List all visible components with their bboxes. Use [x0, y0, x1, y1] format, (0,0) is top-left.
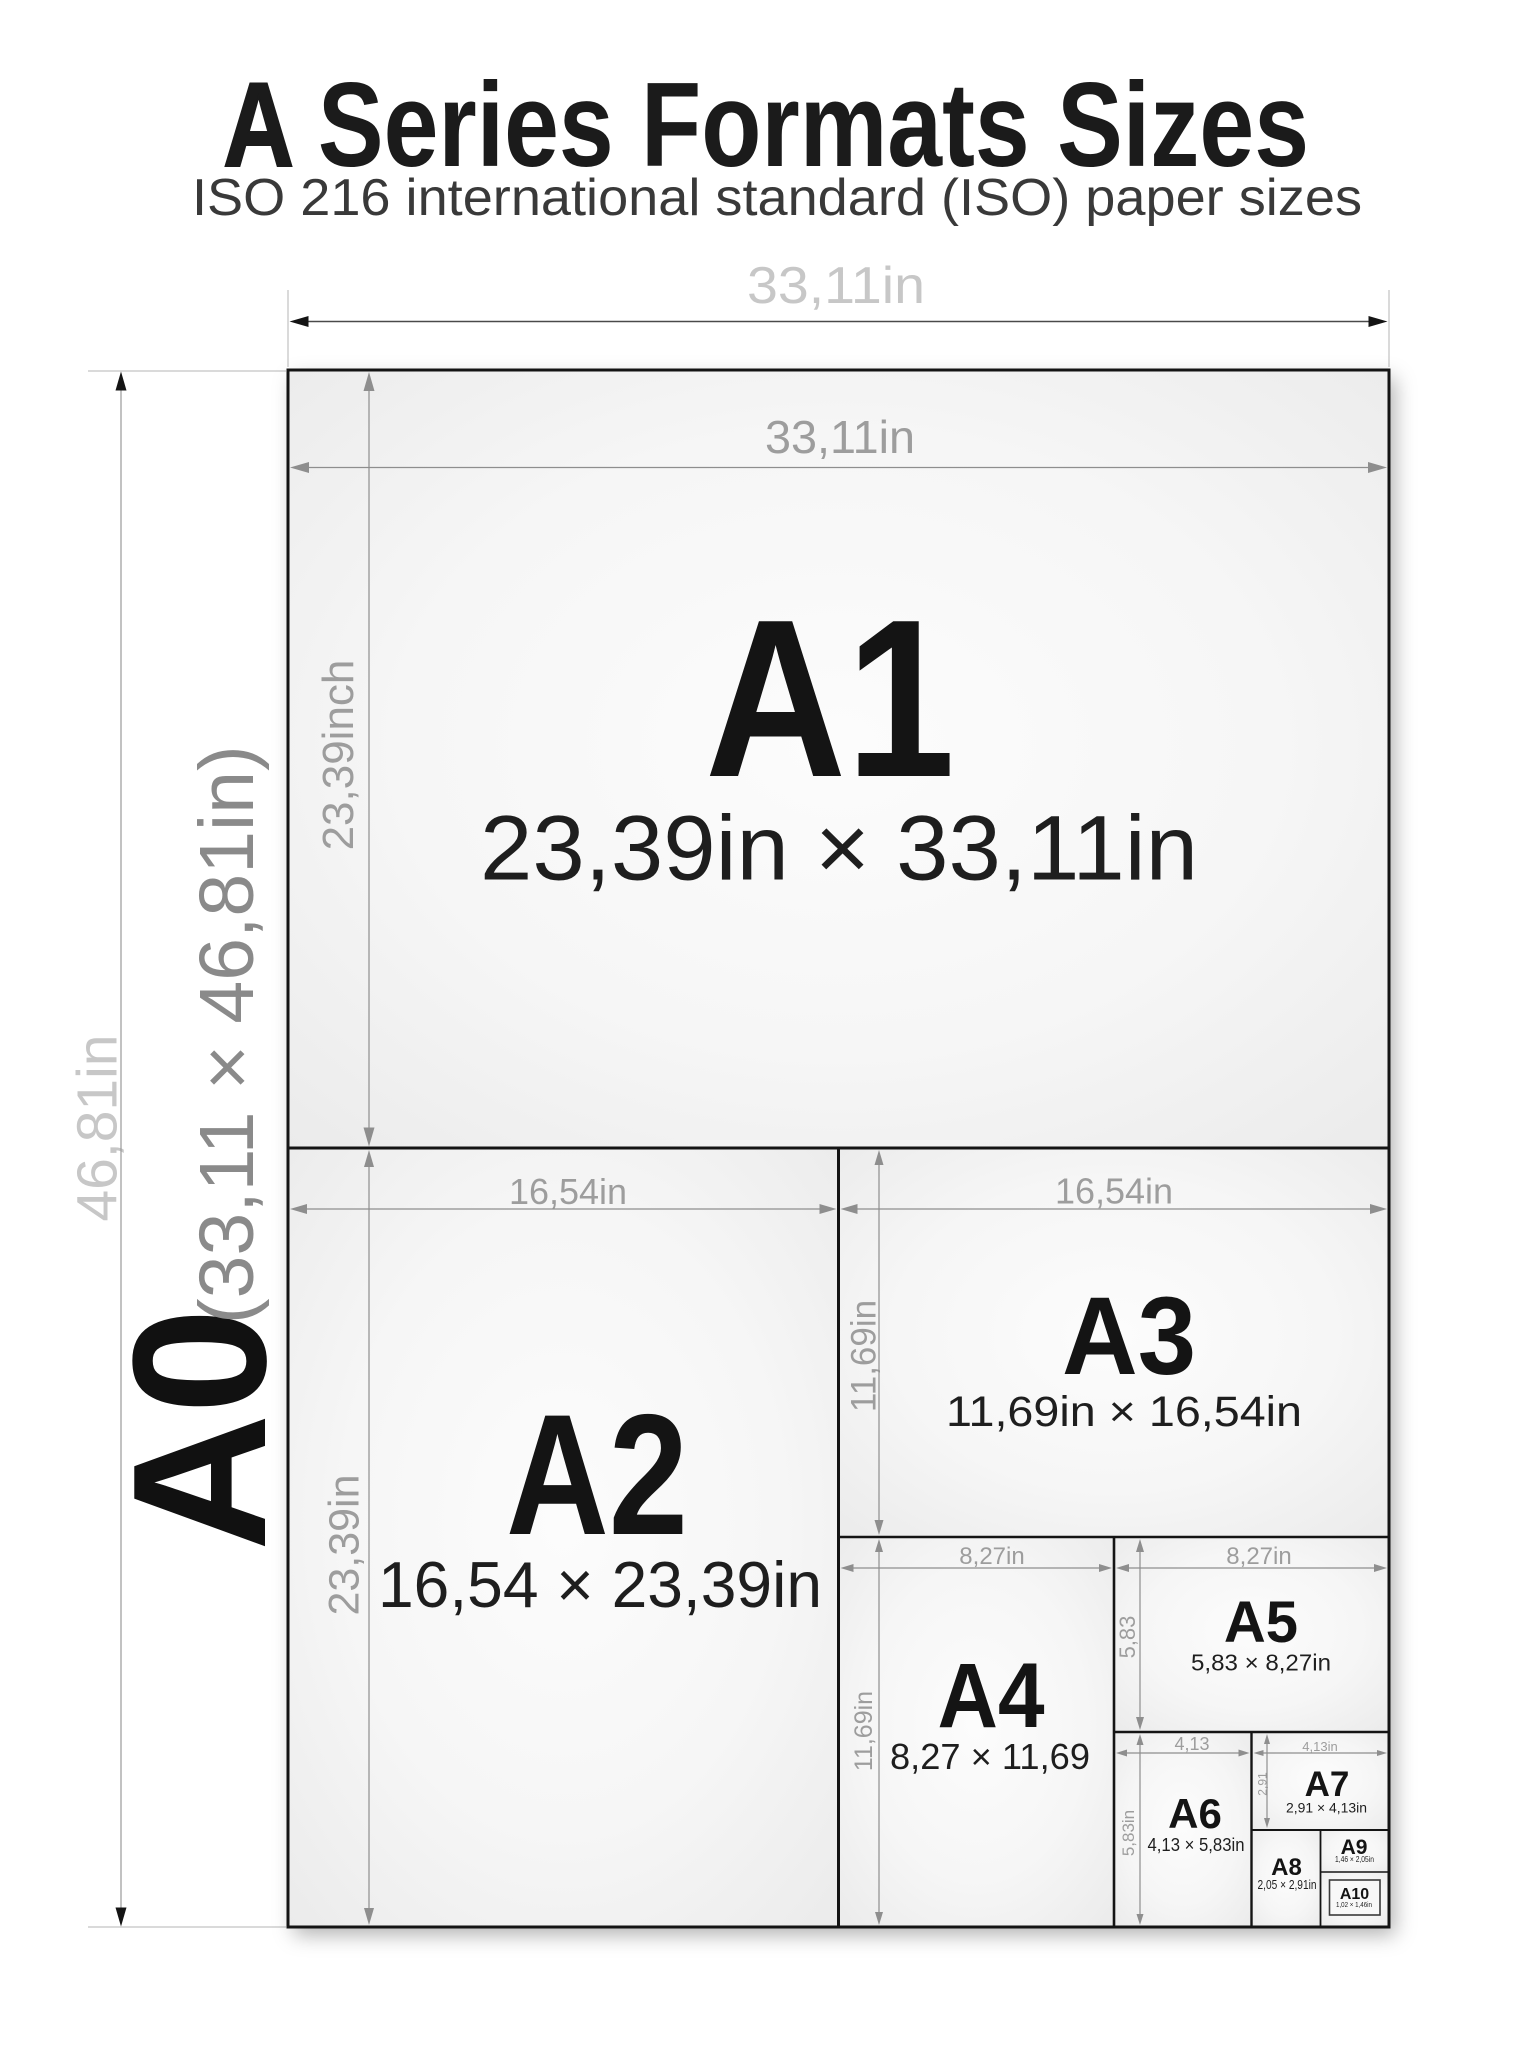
- svg-text:5,83in: 5,83in: [1119, 1810, 1138, 1856]
- svg-text:4,13: 4,13: [1174, 1734, 1209, 1754]
- svg-text:A4: A4: [938, 1645, 1045, 1747]
- svg-text:4,13 × 5,83in: 4,13 × 5,83in: [1148, 1835, 1245, 1855]
- svg-text:A0: A0: [94, 1308, 306, 1551]
- svg-text:33,11in: 33,11in: [765, 411, 915, 463]
- svg-text:A7: A7: [1305, 1765, 1350, 1804]
- svg-text:2,05 × 2,91in: 2,05 × 2,91in: [1258, 1877, 1317, 1892]
- svg-text:8,27in: 8,27in: [959, 1543, 1024, 1570]
- svg-text:A5: A5: [1224, 1590, 1298, 1655]
- svg-text:46,81in: 46,81in: [66, 1034, 130, 1221]
- svg-text:1,02 × 1,46in: 1,02 × 1,46in: [1336, 1902, 1372, 1909]
- svg-text:16,54in: 16,54in: [509, 1171, 627, 1212]
- svg-text:16,54 × 23,39in: 16,54 × 23,39in: [378, 1548, 822, 1621]
- svg-text:33,11in: 33,11in: [747, 257, 925, 315]
- svg-text:A6: A6: [1168, 1790, 1222, 1837]
- svg-text:A2: A2: [506, 1379, 688, 1571]
- svg-text:A3: A3: [1062, 1275, 1196, 1398]
- svg-text:8,27in: 8,27in: [1226, 1543, 1291, 1570]
- svg-text:23,39in × 33,11in: 23,39in × 33,11in: [480, 798, 1198, 900]
- svg-text:23,39inch: 23,39inch: [314, 660, 363, 851]
- svg-text:11,69in: 11,69in: [850, 1691, 878, 1771]
- svg-text:5,83: 5,83: [1115, 1616, 1140, 1659]
- svg-text:16,54in: 16,54in: [1055, 1171, 1173, 1212]
- svg-text:11,69in × 16,54in: 11,69in × 16,54in: [946, 1388, 1302, 1436]
- svg-text:5,83 × 8,27in: 5,83 × 8,27in: [1191, 1650, 1331, 1676]
- svg-text:4,13in: 4,13in: [1302, 1739, 1337, 1754]
- svg-text:23,39in: 23,39in: [321, 1474, 369, 1615]
- svg-text:1,46 × 2,05in: 1,46 × 2,05in: [1335, 1855, 1374, 1864]
- svg-text:A10: A10: [1340, 1886, 1369, 1903]
- svg-text:11,69in: 11,69in: [845, 1300, 884, 1412]
- svg-text:A1: A1: [705, 572, 955, 824]
- svg-text:(33,11 × 46,81in): (33,11 × 46,81in): [184, 745, 270, 1324]
- svg-text:ISO 216 international standard: ISO 216 international standard (ISO) pap…: [192, 169, 1362, 227]
- svg-text:8,27 × 11,69: 8,27 × 11,69: [890, 1736, 1090, 1777]
- svg-text:2,91 × 4,13in: 2,91 × 4,13in: [1286, 1800, 1367, 1816]
